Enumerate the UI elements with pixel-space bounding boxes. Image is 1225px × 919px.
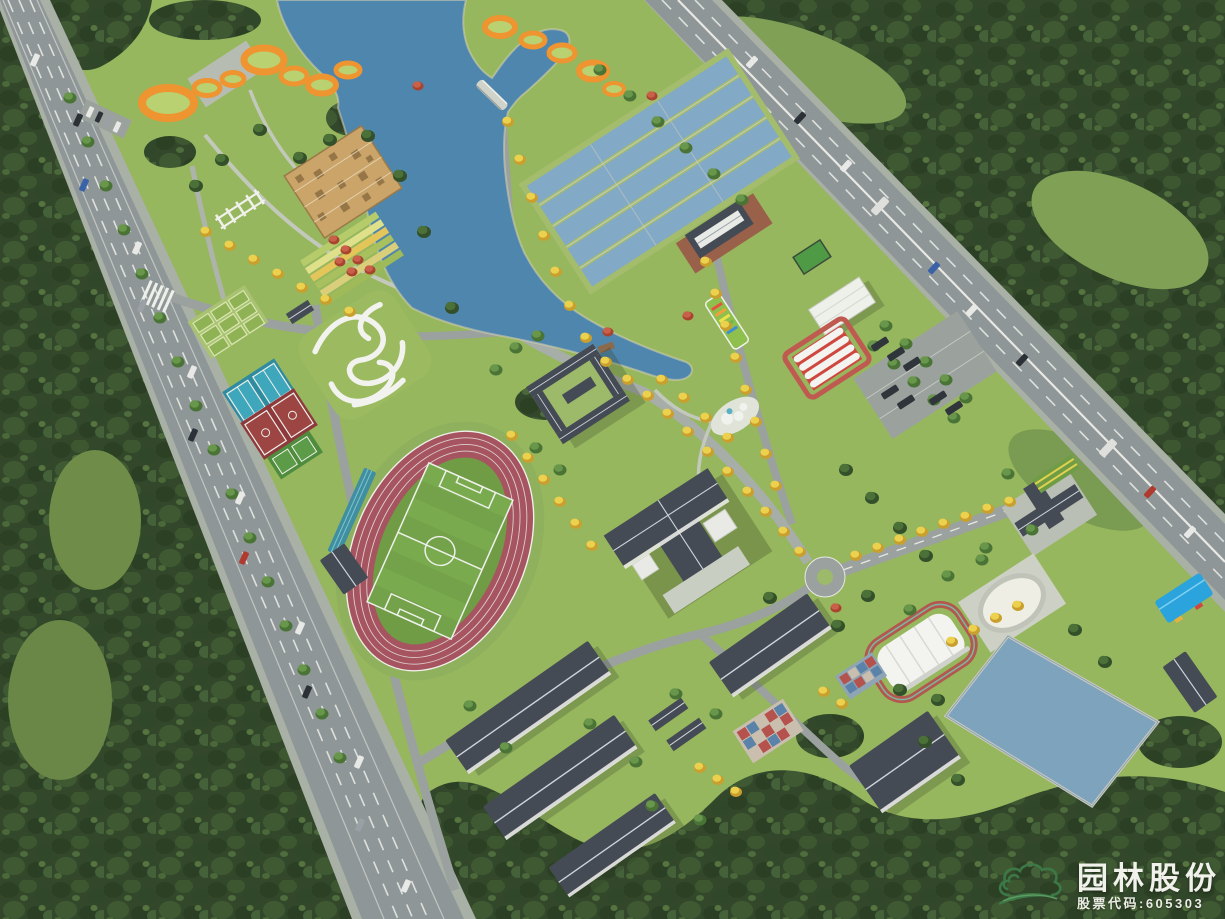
tree-mass [149, 0, 261, 40]
tree-mass [144, 136, 196, 168]
forest-clearing [8, 620, 112, 780]
masterplan-rendering [0, 0, 1225, 919]
aerial-rendering-stage: 园林股份 股票代码:605303 [0, 0, 1225, 919]
forest-clearing [49, 450, 141, 590]
roundabout-island [817, 569, 833, 585]
